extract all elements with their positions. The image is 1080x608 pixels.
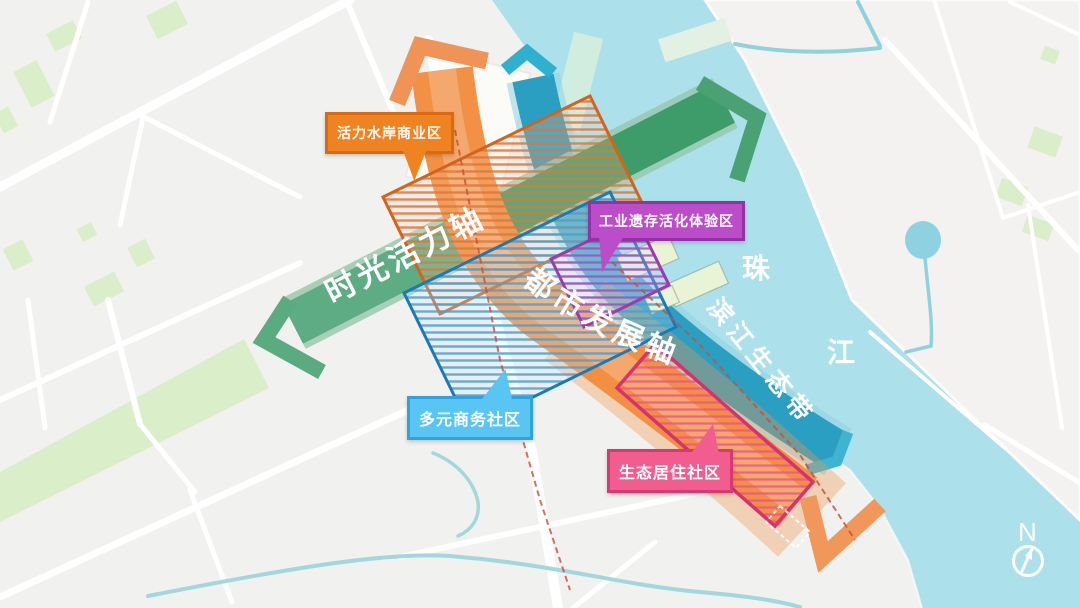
river-name-char-2: 江 xyxy=(827,337,855,368)
callout-residential-label: 生态居住社区 xyxy=(619,465,721,482)
planning-map: 时光活力轴 都市发展轴 滨江生态带 珠 江 N 活力水岸商业区 工业遗存活化体验… xyxy=(0,0,1080,608)
compass-n-label: N xyxy=(1018,517,1037,547)
river-name-char-1: 珠 xyxy=(742,253,771,284)
callout-industrial-label: 工业遗存活化体验区 xyxy=(599,213,734,229)
basemap-svg: 时光活力轴 都市发展轴 滨江生态带 珠 江 N xyxy=(0,0,1080,608)
callout-commercial-zone: 活力水岸商业区 xyxy=(325,112,454,154)
callout-business-label: 多元商务社区 xyxy=(419,412,521,429)
callout-commercial-label: 活力水岸商业区 xyxy=(337,125,442,141)
pond xyxy=(905,221,941,259)
callout-industrial-zone: 工业遗存活化体验区 xyxy=(588,201,745,241)
callout-business-zone: 多元商务社区 xyxy=(407,396,533,440)
callout-residential-zone: 生态居住社区 xyxy=(607,449,733,493)
